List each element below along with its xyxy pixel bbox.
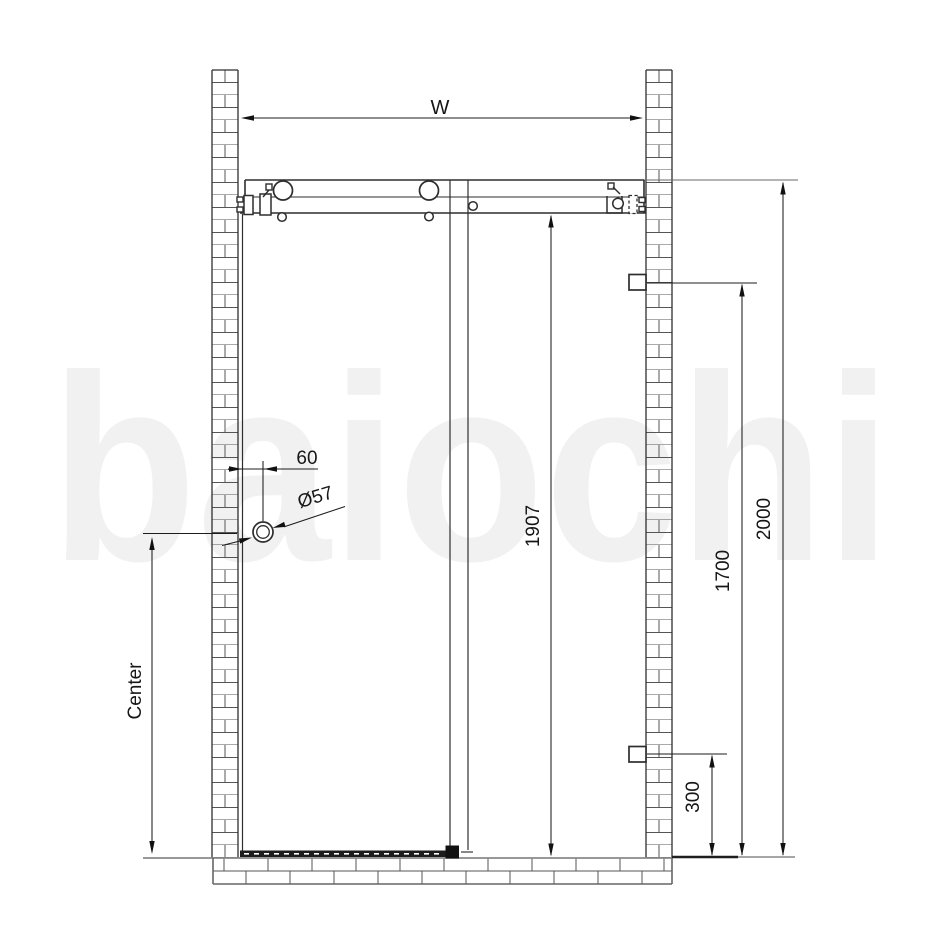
left-clamp-body bbox=[244, 196, 253, 215]
right-wall bbox=[646, 70, 672, 858]
label-opening-width: W bbox=[431, 97, 450, 119]
knob-inner-circle bbox=[257, 526, 270, 539]
right-clamp-upper-lug bbox=[639, 198, 645, 203]
arrow-1700-up bbox=[739, 284, 744, 297]
shower-door-installation-diagram: baiochi bbox=[0, 0, 942, 942]
right-clamp-hidden-body bbox=[629, 196, 637, 214]
arrow-300-down bbox=[709, 843, 714, 856]
floor-bricks bbox=[213, 858, 672, 884]
threshold-end-block bbox=[446, 846, 460, 859]
left-wall bbox=[212, 70, 238, 858]
label-upper-bracket-height: 1700 bbox=[713, 550, 734, 592]
fixed-panel-bolt-icon bbox=[469, 202, 478, 211]
door-handle-knob bbox=[253, 522, 273, 542]
right-wall-bricks bbox=[646, 70, 672, 858]
roller-bolt-left-icon bbox=[278, 213, 287, 222]
arrow-w-left bbox=[241, 115, 254, 120]
arrow-1700-down bbox=[739, 843, 744, 856]
door-rollers bbox=[274, 181, 478, 221]
label-handle-offset: 60 bbox=[296, 448, 317, 469]
brand-watermark: baiochi bbox=[50, 321, 892, 617]
right-hanger-bolt-icon bbox=[613, 198, 624, 209]
upper-wall-bracket bbox=[629, 275, 646, 291]
right-track-wall-mount bbox=[607, 183, 645, 214]
arrow-center-down bbox=[149, 841, 154, 854]
arrow-w-right bbox=[630, 115, 643, 120]
left-hanger-bracket bbox=[260, 194, 271, 215]
label-glass-height: 1907 bbox=[523, 505, 544, 547]
technical-drawing-page: baiochi bbox=[0, 0, 942, 942]
arrow-2000-up bbox=[780, 182, 785, 195]
right-hanger-hook-arm bbox=[613, 187, 620, 194]
roller-bolt-mid-icon bbox=[425, 212, 434, 221]
label-handle-center: Center bbox=[125, 662, 146, 720]
label-lower-bracket-height: 300 bbox=[683, 781, 704, 813]
left-track-wall-mount bbox=[237, 184, 272, 215]
bottom-threshold-track bbox=[240, 846, 459, 859]
top-track bbox=[240, 180, 798, 213]
arrow-2000-down bbox=[780, 843, 785, 856]
right-hanger-hook bbox=[608, 183, 614, 189]
arrow-1907-down bbox=[548, 844, 553, 857]
left-clamp-upper-lug bbox=[237, 197, 243, 202]
left-clamp-lower-lug bbox=[237, 207, 243, 212]
left-wall-bricks bbox=[212, 70, 238, 858]
lower-wall-bracket bbox=[629, 747, 646, 763]
left-hanger-hook bbox=[266, 184, 272, 190]
roller-right-icon bbox=[420, 181, 439, 200]
arrow-1907-up bbox=[548, 215, 553, 228]
arrow-300-up bbox=[709, 755, 714, 768]
right-clamp-lower-lug bbox=[639, 207, 645, 212]
roller-left-icon bbox=[274, 181, 293, 200]
label-overall-height: 2000 bbox=[754, 498, 775, 540]
floor bbox=[143, 857, 795, 884]
